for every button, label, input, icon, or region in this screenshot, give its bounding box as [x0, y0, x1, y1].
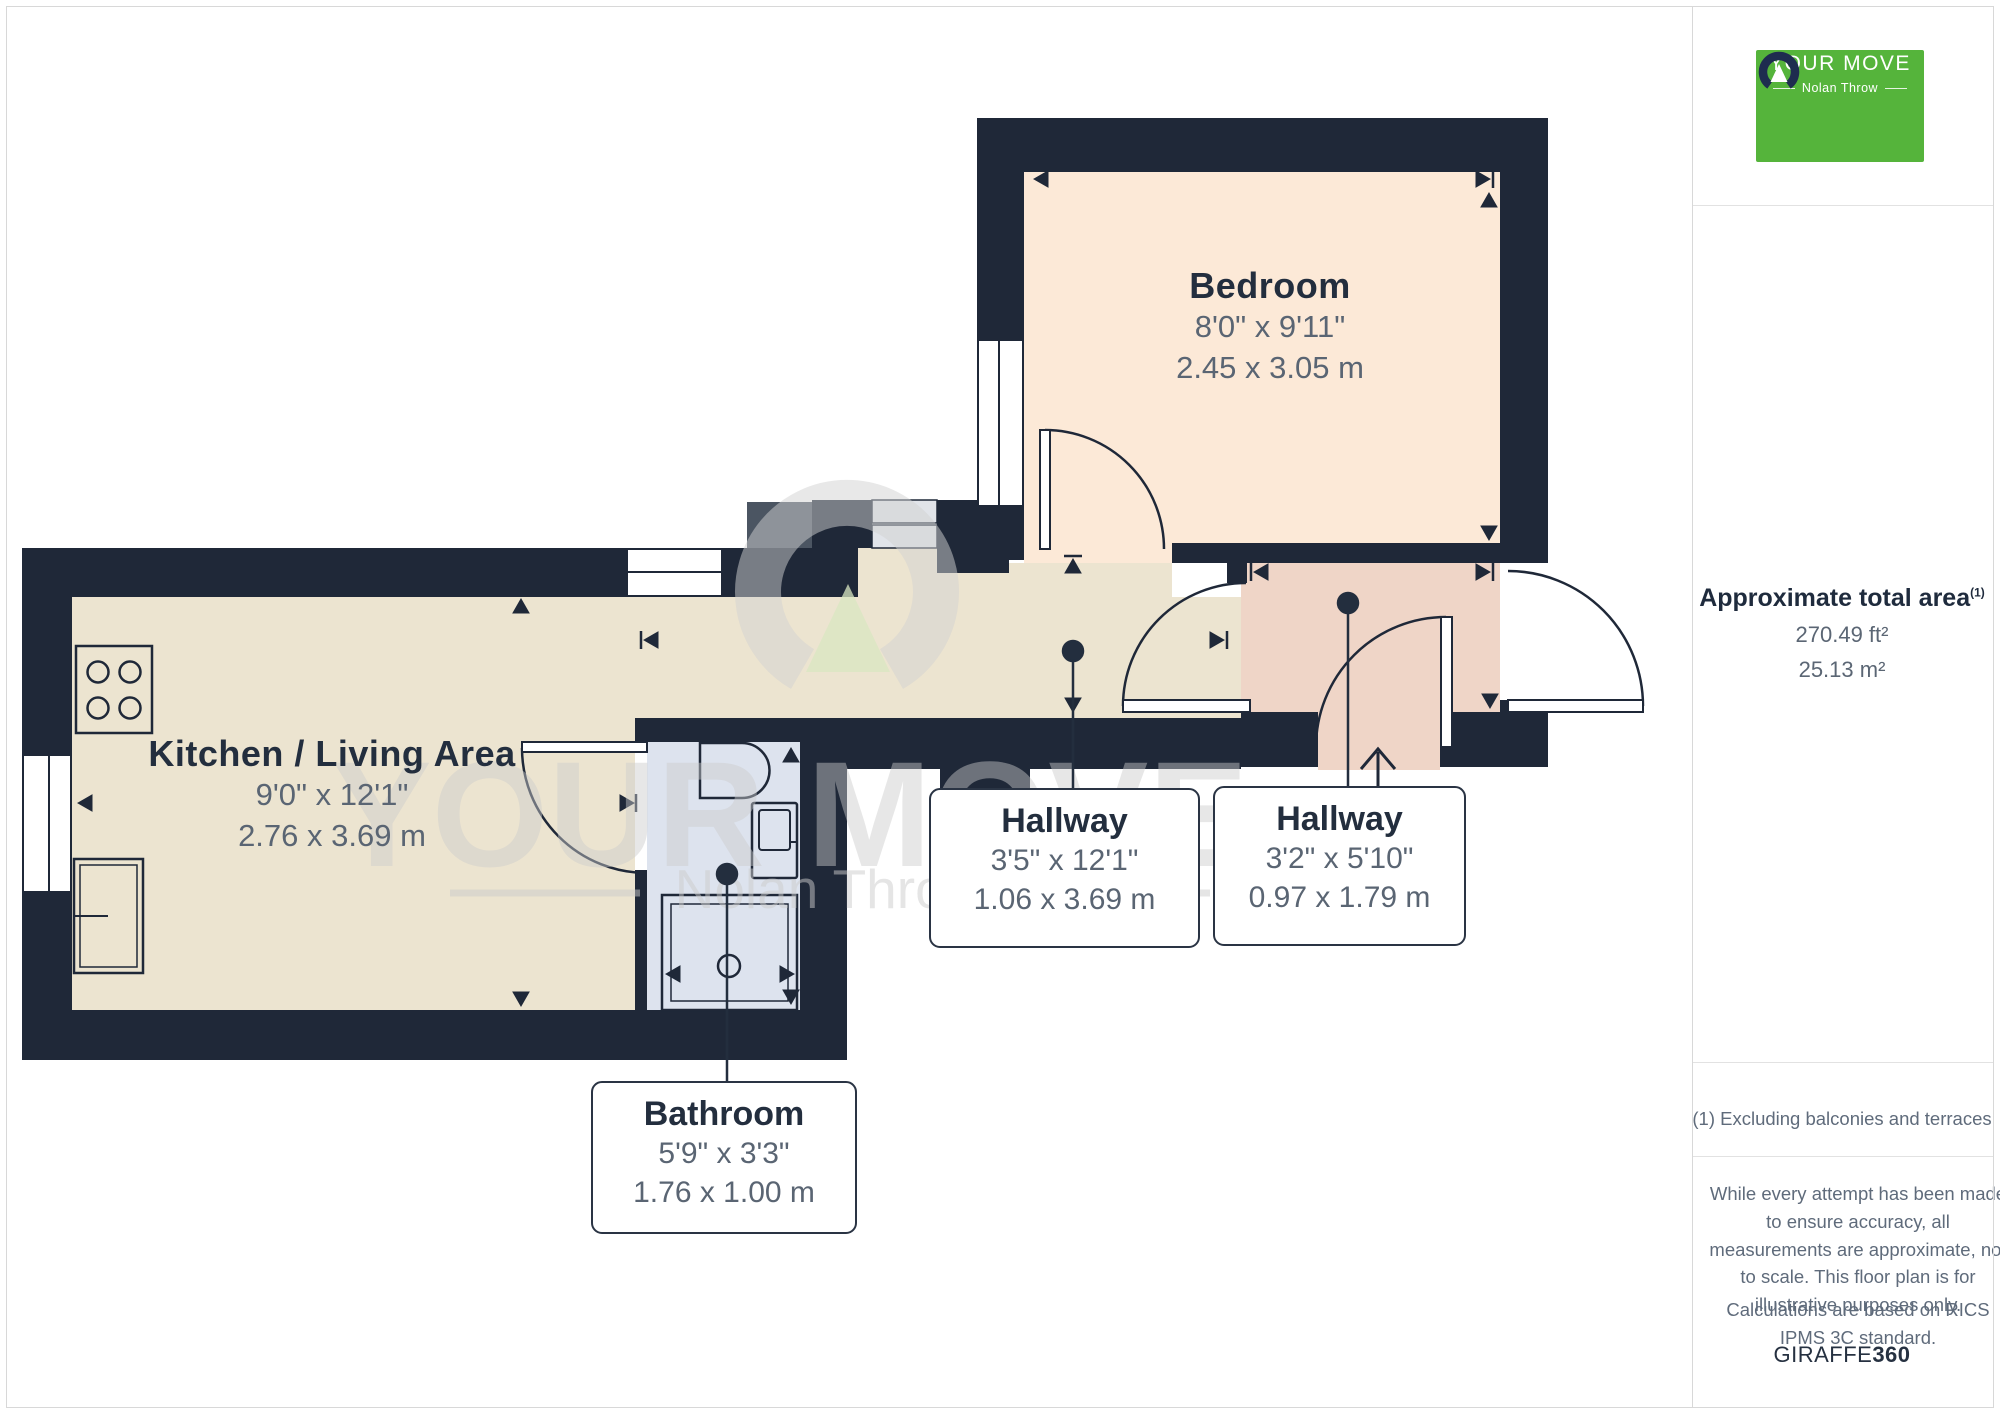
room-dim-imperial: 9'0" x 12'1": [148, 775, 515, 816]
room-dim-metric: 0.97 x 1.79 m: [1215, 878, 1464, 917]
logo-dash: [1885, 88, 1907, 89]
credit-suffix: 360: [1872, 1342, 1910, 1367]
room-dim-imperial: 3'2" x 5'10": [1215, 839, 1464, 878]
total-area-metric: 25.13 m²: [1692, 657, 1992, 683]
credit: GIRAFFE360: [1692, 1342, 1992, 1368]
room-dim-metric: 2.76 x 3.69 m: [148, 816, 515, 857]
total-area-title-text: Approximate total area: [1699, 584, 1970, 612]
kitchen-bottom-wall: [22, 1010, 847, 1060]
agency-logo-subtitle: Nolan Throw: [1802, 81, 1878, 95]
hallway2-bottom-wall-right: [1440, 712, 1548, 767]
bedroom-label: Bedroom 8'0" x 9'11" 2.45 x 3.05 m: [1176, 265, 1364, 389]
total-area-block: Approximate total area(1) 270.49 ft² 25.…: [1692, 584, 1992, 683]
hallway1-callout: Hallway 3'5" x 12'1" 1.06 x 3.69 m: [929, 788, 1200, 948]
bedroom-door-leaf: [1040, 430, 1050, 549]
room-title: Bathroom: [593, 1095, 855, 1134]
room-dim-metric: 2.45 x 3.05 m: [1176, 348, 1364, 389]
total-area-title: Approximate total area(1): [1692, 584, 1992, 613]
room-dim-metric: 1.76 x 1.00 m: [593, 1173, 855, 1212]
bedroom-window: [978, 340, 1023, 506]
agency-logo-mark-icon: [1756, 50, 1802, 90]
room-title: Bedroom: [1176, 265, 1364, 307]
bathroom-anchor-dot: [717, 864, 737, 884]
total-area-imperial: 270.49 ft²: [1692, 622, 1992, 648]
hallway-door-leaf: [1123, 700, 1250, 712]
room-title: Kitchen / Living Area: [148, 733, 515, 775]
bedroom-doorway-floor: [1009, 563, 1172, 597]
floorplan-page: YOUR MOVE Nolan Throw Bedroom 8'0" x 9'1…: [0, 0, 2000, 1414]
hallway2-floor: [1241, 563, 1500, 712]
room-title: Hallway: [931, 802, 1198, 841]
divider: [1693, 205, 1993, 206]
bedroom-top-wall: [977, 118, 1548, 172]
room-dim-imperial: 3'5" x 12'1": [931, 841, 1198, 880]
agency-logo: YOUR MOVE Nolan Throw: [1756, 50, 1924, 162]
kitchen-window: [23, 755, 71, 892]
credit-name: GIRAFFE: [1773, 1342, 1872, 1367]
divider: [1693, 1062, 1993, 1063]
bathroom-callout: Bathroom 5'9" x 3'3" 1.76 x 1.00 m: [591, 1081, 857, 1234]
hallway2-callout: Hallway 3'2" x 5'10" 0.97 x 1.79 m: [1213, 786, 1466, 946]
room-title: Hallway: [1215, 800, 1464, 839]
footnote-marker: (1): [1970, 586, 1985, 600]
room-dim-metric: 1.06 x 3.69 m: [931, 880, 1198, 919]
exterior-door-arc: [1508, 571, 1643, 706]
bedroom-right-wall: [1500, 118, 1548, 563]
entrance-door-leaf: [1441, 617, 1452, 747]
kitchen-top-wall: [22, 548, 858, 597]
divider: [1693, 1156, 1993, 1157]
bedroom-bottom-wall: [1172, 543, 1548, 563]
hallway2-anchor-dot: [1338, 593, 1358, 613]
hallway2-bottom-wall-left: [1241, 712, 1318, 767]
footnote: (1) Excluding balconies and terraces: [1692, 1108, 1992, 1130]
room-dim-imperial: 5'9" x 3'3": [593, 1134, 855, 1173]
room-dim-imperial: 8'0" x 9'11": [1176, 307, 1364, 348]
kitchen-label: Kitchen / Living Area 9'0" x 12'1" 2.76 …: [148, 733, 515, 857]
exterior-door-leaf: [1508, 700, 1643, 712]
hallway-door-stub: [1227, 563, 1247, 583]
hallway1-anchor-dot: [1063, 641, 1083, 661]
